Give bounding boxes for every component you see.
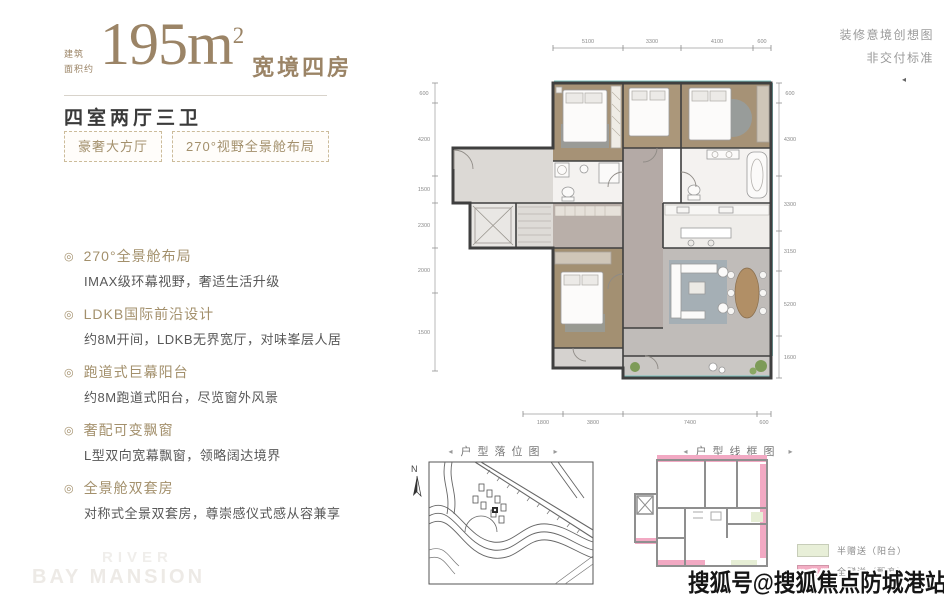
feature-desc: IMAX级环幕视野，奢适生活升级 (84, 271, 374, 290)
area-label-line1: 建筑 (64, 47, 94, 62)
dim-label: 3300 (784, 202, 796, 208)
brand-watermark-line2: BAY MANSION (32, 566, 205, 589)
ring-bullet-icon: ◎ (64, 308, 75, 321)
brand-watermark: RIVER BAY MANSION (32, 549, 205, 589)
floor-plan: 5100 3300 4100 600 1800 3800 7400 600 60… (413, 26, 797, 428)
dim-label: 3150 (784, 249, 796, 255)
feature-desc: 约8M开间，LDKB无界宽厅，对味峯层人居 (84, 329, 374, 348)
project-marker-icon (492, 507, 498, 513)
legend-label: 半赠送（阳台） (837, 544, 907, 557)
locator-section-label: ◂ 户型落位图 ▸ (407, 443, 599, 459)
badge-luxury-hall: 豪奢大方厅 (64, 131, 162, 162)
location-map: N (405, 458, 597, 588)
wireframe-elevator (637, 496, 653, 514)
triangle-left-icon: ◂ (448, 447, 452, 456)
list-item: ◎跑道式巨幕阳台 约8M跑道式阳台，尽览窗外风景 (64, 362, 374, 406)
area-number: 195m2 (100, 10, 244, 79)
ring-bullet-icon: ◎ (64, 424, 75, 437)
feature-desc: 约8M跑道式阳台，尽览窗外风景 (84, 387, 374, 406)
sohu-watermark: 搜狐号@搜狐焦点防城港站 (688, 563, 944, 598)
badge-270-view: 270°视野全景舱布局 (172, 131, 329, 162)
dim-label: 600 (759, 420, 768, 426)
area-exponent: 2 (233, 23, 244, 48)
dim-label: 1500 (418, 187, 430, 193)
list-item: ◎奢配可变飘窗 L型双向宽幕飘窗，领略阔达境界 (64, 420, 374, 464)
list-item: ◎LDKB国际前沿设计 约8M开间，LDKB无界宽厅，对味峯层人居 (64, 304, 374, 348)
feature-title: 270°全景舱布局 (84, 246, 192, 266)
ring-bullet-icon: ◎ (64, 482, 75, 495)
dim-label: 600 (419, 91, 428, 97)
feature-title: 奢配可变飘窗 (84, 420, 174, 440)
triangle-right-icon: ▸ (554, 447, 558, 456)
feature-title: 全景舱双套房 (84, 478, 174, 498)
area-number-text: 195m (100, 11, 233, 77)
feature-desc: L型双向宽幕飘窗，领略阔达境界 (84, 445, 374, 464)
disclaimer-line2: 非交付标准 (839, 47, 934, 70)
dim-label: 4100 (711, 39, 723, 45)
compass-n-label: N (411, 464, 418, 474)
dim-label: 7400 (684, 420, 696, 426)
list-item: ◎270°全景舱布局 IMAX级环幕视野，奢适生活升级 (64, 246, 374, 290)
title-divider (64, 95, 327, 96)
cursor-mark-icon: ◂ (839, 72, 934, 87)
dim-label: 4200 (418, 137, 430, 143)
hero-title-block: 建筑 面积约 195m2 宽境四房 (64, 10, 352, 82)
dim-label: 4300 (784, 137, 796, 143)
wireframe-fixtures (693, 512, 721, 520)
area-label: 建筑 面积约 (64, 47, 94, 78)
badge-row: 豪奢大方厅 270°视野全景舱布局 (64, 131, 329, 162)
dim-label: 2000 (418, 268, 430, 274)
flyer-page: 建筑 面积约 195m2 宽境四房 四室两厅三卫 豪奢大方厅 270°视野全景舱… (0, 0, 944, 601)
dim-label: 3800 (587, 420, 599, 426)
feature-title: 跑道式巨幕阳台 (84, 362, 189, 382)
dim-label: 600 (757, 39, 766, 45)
dim-label: 5100 (582, 39, 594, 45)
area-label-line2: 面积约 (64, 62, 94, 77)
feature-title: LDKB国际前沿设计 (84, 304, 215, 324)
wireframe-gift-areas (635, 455, 767, 567)
wireframe-walls (635, 460, 767, 566)
ring-bullet-icon: ◎ (64, 366, 75, 379)
area-name: 宽境四房 (252, 50, 352, 82)
layout-line: 四室两厅三卫 (64, 103, 202, 130)
dim-label: 600 (785, 91, 794, 97)
compass-icon: N (411, 464, 421, 496)
dim-label: 1500 (418, 330, 430, 336)
ring-bullet-icon: ◎ (64, 250, 75, 263)
brand-watermark-line1: RIVER (102, 549, 205, 566)
feature-desc: 对称式全景双套房，尊崇感仪式感从容兼享 (84, 503, 374, 522)
dim-label: 1800 (537, 420, 549, 426)
dim-label: 3300 (646, 39, 658, 45)
legend-swatch-green (797, 544, 829, 557)
feature-list: ◎270°全景舱布局 IMAX级环幕视野，奢适生活升级 ◎LDKB国际前沿设计 … (64, 246, 374, 536)
disclaimer: 装修意境创想图 非交付标准 ◂ (839, 24, 934, 87)
legend-item-half-gift: 半赠送（阳台） (797, 544, 907, 557)
dim-label: 1600 (784, 355, 796, 361)
dim-label: 2300 (418, 223, 430, 229)
disclaimer-line1: 装修意境创想图 (839, 24, 934, 47)
triangle-right-icon: ▸ (789, 447, 793, 456)
list-item: ◎全景舱双套房 对称式全景双套房，尊崇感仪式感从容兼享 (64, 478, 374, 522)
dim-label: 5200 (784, 302, 796, 308)
locator-label-text: 户型落位图 (461, 443, 546, 459)
